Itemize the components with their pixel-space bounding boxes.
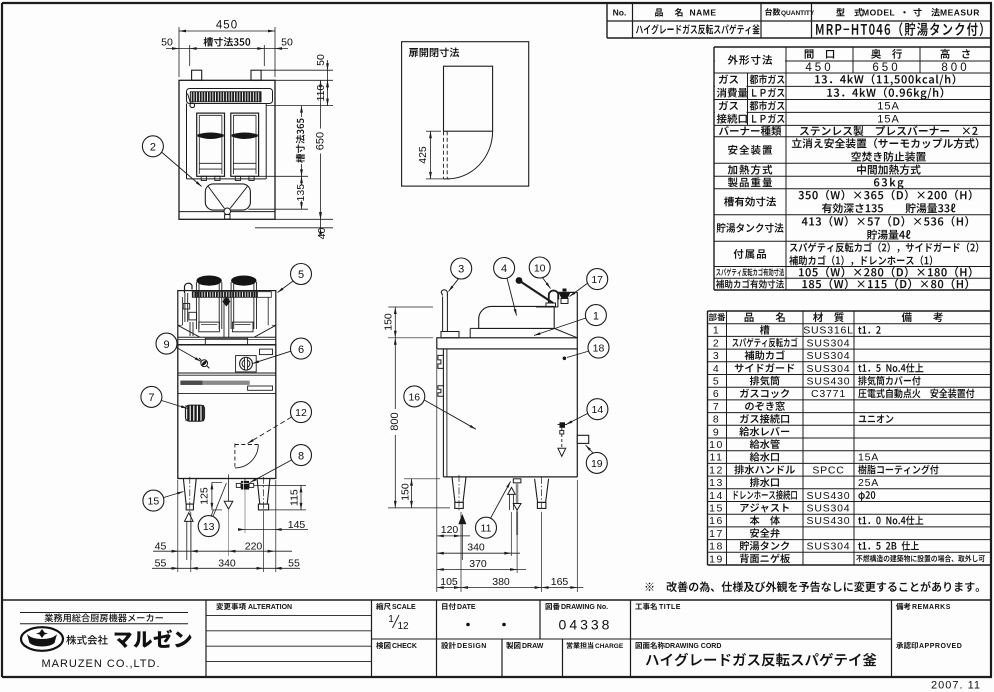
svg-text:2: 2: [150, 142, 156, 154]
svg-text:ALTERATION: ALTERATION: [248, 604, 292, 611]
svg-text:MEASUR: MEASUR: [940, 8, 980, 18]
svg-text:150: 150: [383, 313, 395, 331]
svg-text:SUS430: SUS430: [807, 515, 851, 527]
svg-text:800: 800: [389, 412, 401, 430]
svg-text:2007. 11: 2007. 11: [931, 679, 981, 691]
svg-text:650: 650: [314, 132, 326, 150]
svg-text:TITLE: TITLE: [659, 604, 681, 611]
svg-text:CHECK: CHECK: [392, 643, 417, 650]
svg-text:3: 3: [458, 264, 464, 276]
svg-text:14: 14: [709, 490, 724, 502]
svg-text:6: 6: [713, 388, 720, 400]
svg-text:SUS304: SUS304: [807, 363, 851, 375]
svg-text:15A: 15A: [858, 452, 879, 464]
svg-text:12: 12: [295, 407, 307, 419]
svg-text:SUS304: SUS304: [807, 541, 851, 553]
svg-text:4: 4: [713, 363, 720, 375]
svg-text:No.: No.: [613, 8, 627, 18]
svg-text:APPROVED: APPROVED: [919, 643, 962, 650]
svg-text:14: 14: [592, 404, 604, 416]
svg-text:8: 8: [713, 414, 720, 426]
svg-text:DRAWING CORD: DRAWING CORD: [665, 643, 721, 650]
svg-text:105: 105: [440, 576, 458, 588]
svg-text:17: 17: [709, 528, 724, 540]
svg-text:15: 15: [148, 496, 160, 508]
svg-text:9: 9: [163, 339, 169, 351]
svg-text:115: 115: [288, 489, 300, 506]
svg-text:5: 5: [713, 376, 720, 388]
svg-text:120: 120: [441, 524, 459, 536]
svg-text:150: 150: [399, 483, 411, 501]
svg-text:800: 800: [941, 62, 969, 74]
svg-text:55: 55: [288, 558, 300, 570]
svg-text:10: 10: [534, 263, 546, 275]
svg-text:19: 19: [709, 553, 724, 565]
svg-text:380: 380: [492, 576, 510, 588]
svg-text:40: 40: [316, 228, 328, 240]
svg-text:16: 16: [408, 391, 420, 403]
svg-text:12: 12: [709, 464, 724, 476]
svg-text:4: 4: [501, 263, 507, 275]
svg-text:220: 220: [245, 541, 263, 553]
svg-text:15A: 15A: [877, 114, 900, 126]
svg-text:11: 11: [710, 452, 724, 464]
svg-text:370: 370: [469, 558, 487, 570]
svg-text:12: 12: [397, 621, 409, 632]
svg-text:SUS430: SUS430: [807, 490, 851, 502]
svg-text:1: 1: [388, 614, 394, 625]
svg-text:SPCC: SPCC: [812, 464, 844, 476]
svg-text:QUANTITY: QUANTITY: [781, 10, 815, 17]
svg-text:04338: 04338: [559, 616, 613, 632]
svg-text:SUS316L: SUS316L: [803, 325, 854, 337]
svg-text:15A: 15A: [877, 101, 900, 113]
svg-text:8: 8: [298, 450, 304, 462]
svg-text:DRAW: DRAW: [522, 643, 544, 650]
svg-text:2: 2: [713, 337, 720, 349]
svg-text:18: 18: [709, 541, 724, 553]
svg-text:450: 450: [805, 62, 833, 74]
svg-text:125: 125: [199, 487, 211, 505]
svg-text:15: 15: [709, 503, 724, 515]
svg-text:DRAWING No.: DRAWING No.: [561, 604, 608, 611]
svg-text:SUS304: SUS304: [807, 337, 851, 349]
svg-text:650: 650: [872, 62, 900, 74]
svg-text:NAME: NAME: [689, 8, 716, 18]
svg-text:CHARGE: CHARGE: [595, 643, 624, 650]
svg-text:17: 17: [591, 274, 603, 286]
svg-text:SUS304: SUS304: [807, 350, 851, 362]
svg-text:145: 145: [288, 519, 306, 531]
svg-text:13: 13: [203, 521, 215, 533]
svg-text:DESIGN: DESIGN: [457, 643, 487, 650]
svg-text:MODEL: MODEL: [862, 8, 895, 18]
svg-text:MARUZEN CO.,LTD.: MARUZEN CO.,LTD.: [41, 658, 160, 670]
svg-text:11: 11: [481, 523, 492, 535]
svg-text:50: 50: [315, 54, 327, 66]
svg-text:19: 19: [591, 458, 603, 470]
svg-text:10: 10: [709, 439, 724, 451]
svg-text:165: 165: [551, 576, 569, 588]
svg-text:SCALE: SCALE: [392, 604, 416, 611]
svg-text:SUS304: SUS304: [807, 503, 851, 515]
svg-text:7: 7: [148, 392, 154, 404]
svg-text:18: 18: [593, 343, 605, 355]
svg-text:REMARKS: REMARKS: [912, 604, 951, 611]
svg-text:50: 50: [281, 37, 293, 49]
svg-text:425: 425: [417, 146, 429, 164]
svg-text:135: 135: [295, 184, 307, 202]
svg-text:50: 50: [161, 37, 173, 49]
svg-text:7: 7: [713, 401, 720, 413]
svg-text:1: 1: [713, 325, 720, 337]
svg-text:SUS430: SUS430: [807, 376, 851, 388]
svg-text:1: 1: [593, 310, 599, 322]
svg-text:340: 340: [218, 558, 236, 570]
svg-text:C3771: C3771: [811, 388, 846, 400]
svg-text:DATE: DATE: [457, 604, 476, 611]
svg-text:55: 55: [155, 558, 167, 570]
svg-text:6: 6: [298, 344, 304, 356]
svg-text:3: 3: [713, 350, 720, 362]
svg-text:13: 13: [709, 477, 724, 489]
svg-text:9: 9: [713, 426, 720, 438]
svg-text:450: 450: [216, 20, 238, 32]
svg-text:45: 45: [155, 541, 167, 553]
svg-text:16: 16: [709, 515, 724, 527]
svg-text:25A: 25A: [858, 477, 879, 489]
svg-text:5: 5: [298, 269, 304, 281]
svg-text:340: 340: [467, 542, 485, 554]
